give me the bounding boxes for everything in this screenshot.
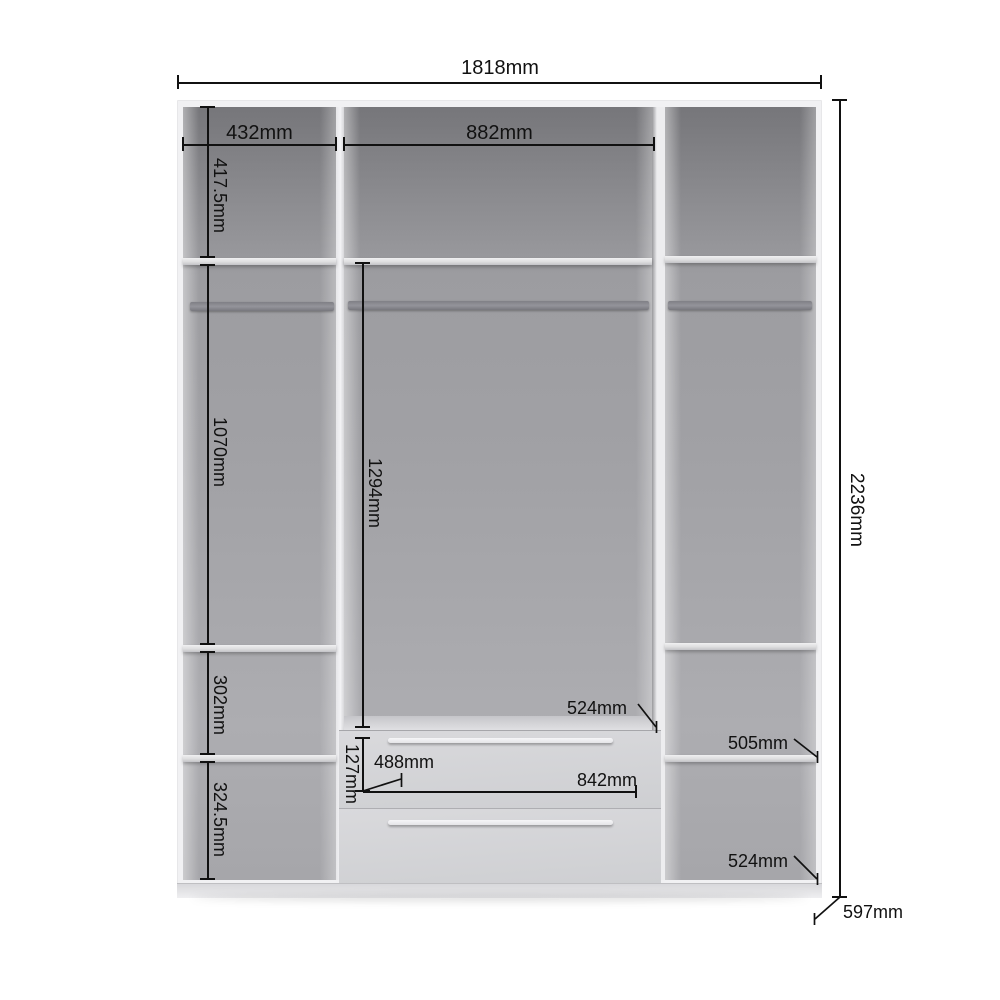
dim-label-drawer-width: 842mm [487,771,637,791]
dim-line-hanging-left [207,265,209,645]
dim-label-top-compartment-height: 417.5mm [211,158,229,233]
dim-line-drawer-width [363,791,637,793]
dim-line-overall-height [839,100,841,897]
dim-line-bottom-compartment [207,762,209,880]
dim-label-left-width: 432mm [183,122,336,144]
left-section-interior [183,107,336,880]
dim-line-drawer-front [362,738,364,792]
dim-line-shelf-compartment [207,652,209,755]
dim-label-middle-hanging-height: 1294mm [366,458,384,528]
dim-tick [355,726,370,728]
middle-top-shelf [344,258,652,265]
left-hanging-rail [190,302,334,311]
dim-label-overall-depth: 597mm [843,903,903,923]
middle-hanging-rail [348,301,649,310]
dim-line-left-width [183,144,336,146]
dim-line-hanging-middle [362,263,364,728]
dim-tick [200,264,215,266]
dim-label-overall-height: 2236mm [847,473,866,547]
dim-tick [200,651,215,653]
dim-tick [832,99,847,101]
dim-tick [200,643,215,645]
dim-label-right-bottom-shelf-depth: 524mm [728,852,788,872]
dim-tick [200,256,215,258]
right-middle-shelf [665,643,816,650]
dim-tick [832,896,847,898]
dim-tick [200,878,215,880]
dim-label-right-shelf-depth: 505mm [728,734,788,754]
leader-overall-depth [815,897,840,919]
dim-tick [200,106,215,108]
dim-label-drawer-inner-width: 488mm [374,753,434,773]
dim-tick [355,262,370,264]
dim-label-drawer-depth: 524mm [567,699,627,719]
drawer-upper-handle [388,738,613,743]
dim-line-middle-width [344,144,655,146]
dim-label-middle-width: 882mm [344,122,655,144]
dim-tick [200,753,215,755]
floor-shadow [192,894,808,901]
wardrobe-dimension-diagram: 1818mm 2236mm 597mm 432mm 882mm 417.5mm … [0,0,1000,1000]
dim-label-shelf-compartment-height: 302mm [211,675,229,735]
dim-label-left-hanging-height: 1070mm [211,417,229,487]
dim-label-bottom-compartment-height: 324.5mm [211,782,229,857]
right-section-interior [665,107,816,880]
dim-line-overall-width [178,82,822,84]
drawer-lower-handle [388,820,613,825]
dim-label-overall-width: 1818mm [178,57,822,79]
right-top-shelf [665,256,816,263]
dim-tick [355,737,370,739]
dim-tick [200,761,215,763]
right-lower-shelf [665,755,816,762]
dim-label-drawer-front-height: 127mm [343,744,361,804]
right-hanging-rail [668,301,812,310]
